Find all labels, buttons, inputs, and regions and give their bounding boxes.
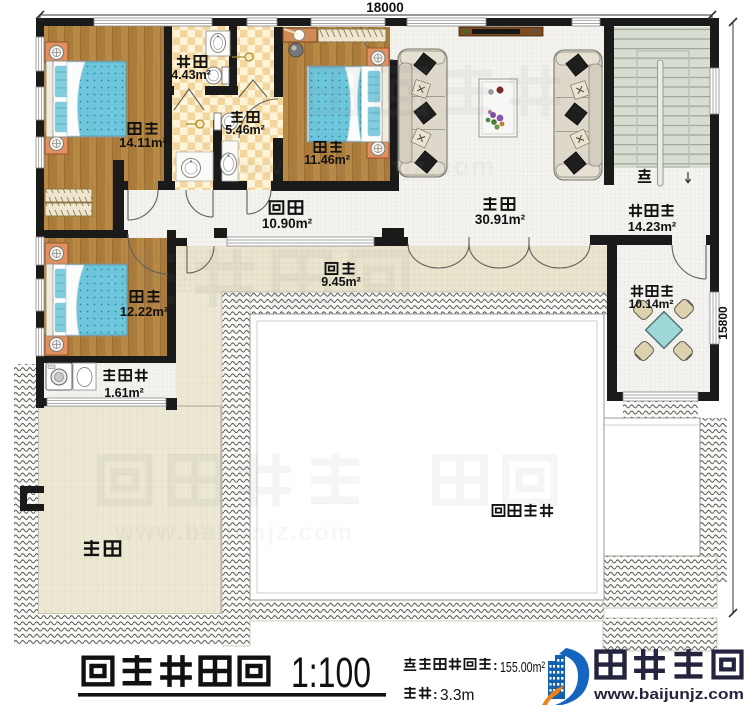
svg-text:155.00m²: 155.00m²	[500, 659, 545, 676]
svg-text:14.11m²: 14.11m²	[119, 135, 167, 150]
svg-text:4.43m²: 4.43m²	[171, 68, 211, 82]
svg-text:30.91m²: 30.91m²	[475, 212, 526, 227]
svg-text:9.45m²: 9.45m²	[321, 275, 361, 289]
svg-text:3.3m: 3.3m	[440, 687, 474, 704]
svg-text::: :	[433, 686, 438, 702]
svg-text:5.46m²: 5.46m²	[225, 123, 265, 137]
svg-text:www.baijunjz.com: www.baijunjz.com	[239, 151, 496, 181]
svg-text:1.61m²: 1.61m²	[104, 386, 144, 400]
svg-text:18000: 18000	[366, 0, 404, 15]
svg-text:www.baijunjz.com: www.baijunjz.com	[114, 519, 354, 546]
svg-text:11.46m²: 11.46m²	[304, 153, 350, 167]
svg-text:1:100: 1:100	[291, 649, 371, 697]
svg-text:10.14m²: 10.14m²	[629, 297, 674, 311]
svg-text:10.90m²: 10.90m²	[262, 216, 313, 231]
svg-text:www.baijunjz.com: www.baijunjz.com	[593, 686, 744, 703]
svg-text::: :	[493, 657, 498, 673]
svg-text:15800: 15800	[716, 306, 730, 340]
svg-text:12.22m²: 12.22m²	[120, 304, 169, 319]
svg-text:14.23m²: 14.23m²	[628, 219, 677, 234]
